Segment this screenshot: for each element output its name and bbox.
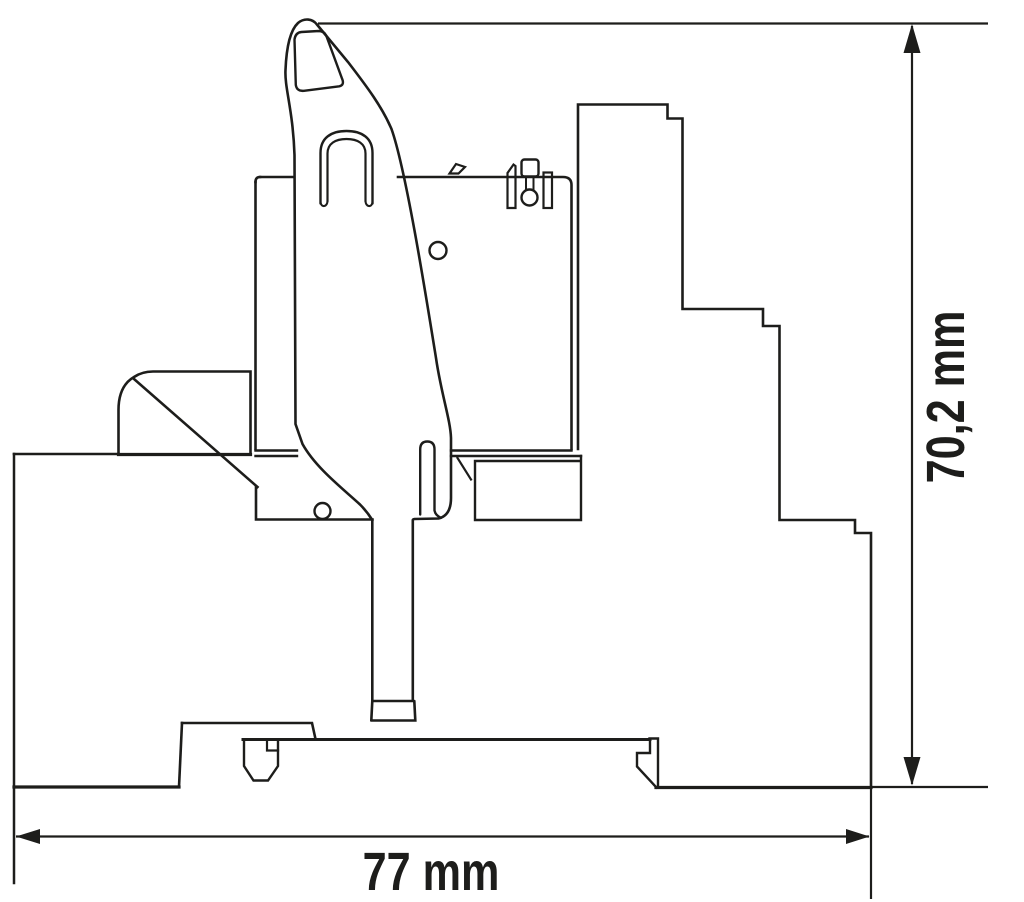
height-dimension-label: 70,2 mm — [917, 311, 977, 484]
relay-body-top-right — [260, 177, 572, 449]
lever-arch-slot-inner — [328, 139, 366, 202]
rear-stepped-profile — [578, 105, 871, 788]
relay-body-bottom-right — [451, 451, 581, 457]
relay-body — [256, 160, 582, 521]
socket-housing — [14, 372, 871, 884]
plunger-left-bar — [508, 165, 516, 209]
test-button-ball — [522, 190, 538, 206]
lever-stem-cap — [371, 701, 415, 721]
wedge-chamfer-line — [134, 379, 258, 487]
arrow-left-icon — [16, 829, 40, 844]
rail-right-hook-steps — [637, 740, 657, 788]
lever-outline — [285, 20, 451, 701]
width-dimension-label: 77 mm — [363, 843, 500, 902]
lever-pull-hole — [295, 31, 343, 91]
lever-latch-finger — [420, 442, 441, 518]
arrow-up-icon — [904, 24, 921, 53]
arrow-right-icon — [846, 829, 870, 844]
release-lever — [285, 20, 451, 721]
rail-clip-left — [179, 723, 182, 787]
lever-arch-slot-tips — [321, 201, 373, 206]
test-button-cap — [522, 160, 539, 177]
test-button-neck — [526, 177, 534, 190]
rail-clip-hook — [244, 740, 278, 781]
terminal-block — [475, 456, 581, 520]
body-pin-hole — [430, 242, 447, 259]
arrow-down-icon — [904, 757, 921, 786]
terminal-block-chamfer — [458, 458, 472, 480]
relay-dimension-drawing: 77 mm 70,2 mm — [0, 0, 1024, 902]
rail-clip-top — [182, 723, 316, 739]
rail-clip-hook-notch — [267, 740, 278, 751]
dimensioning: 77 mm 70,2 mm — [16, 24, 988, 902]
dimension-drawing-page: 77 mm 70,2 mm — [0, 0, 1024, 902]
lever-pivot-hole — [315, 503, 331, 519]
relay-body-bottom-left — [256, 451, 298, 457]
indicator-flag-icon — [450, 164, 466, 174]
